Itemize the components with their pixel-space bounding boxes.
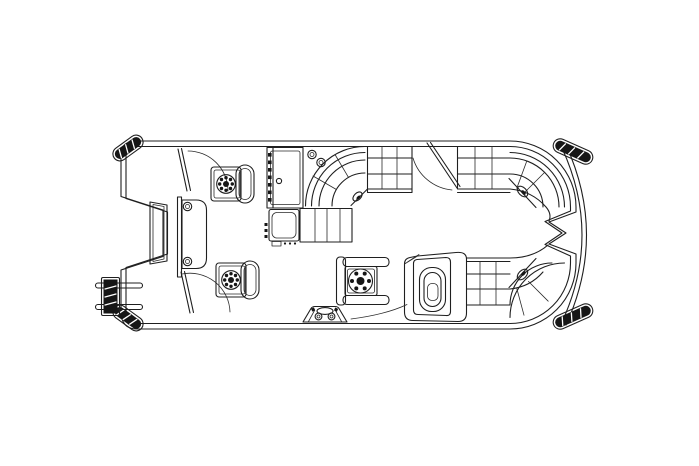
helm-console <box>351 252 467 321</box>
bow-table <box>182 200 207 269</box>
floor-plan-page <box>0 0 699 466</box>
bench-starboard-forward <box>368 147 413 193</box>
boarding-ladder <box>96 278 143 316</box>
pedestal-chair-starboard <box>211 165 254 203</box>
lounge-starboard-aft <box>458 147 565 222</box>
pedestal-chair-port <box>216 261 259 299</box>
hull-fence <box>121 141 576 329</box>
corner-lounge <box>300 147 368 243</box>
deck-step <box>303 307 347 323</box>
gate-starboard-aft <box>413 143 460 191</box>
captain-chair <box>337 257 390 305</box>
stern-cap-port <box>551 302 595 332</box>
bow-cap-starboard <box>110 132 146 163</box>
bow-divider-wall <box>178 197 182 277</box>
galley-console <box>265 148 304 247</box>
gate-port-forward <box>181 272 230 314</box>
lounge-port-aft <box>467 245 565 318</box>
floor-plan-canvas <box>0 0 699 466</box>
